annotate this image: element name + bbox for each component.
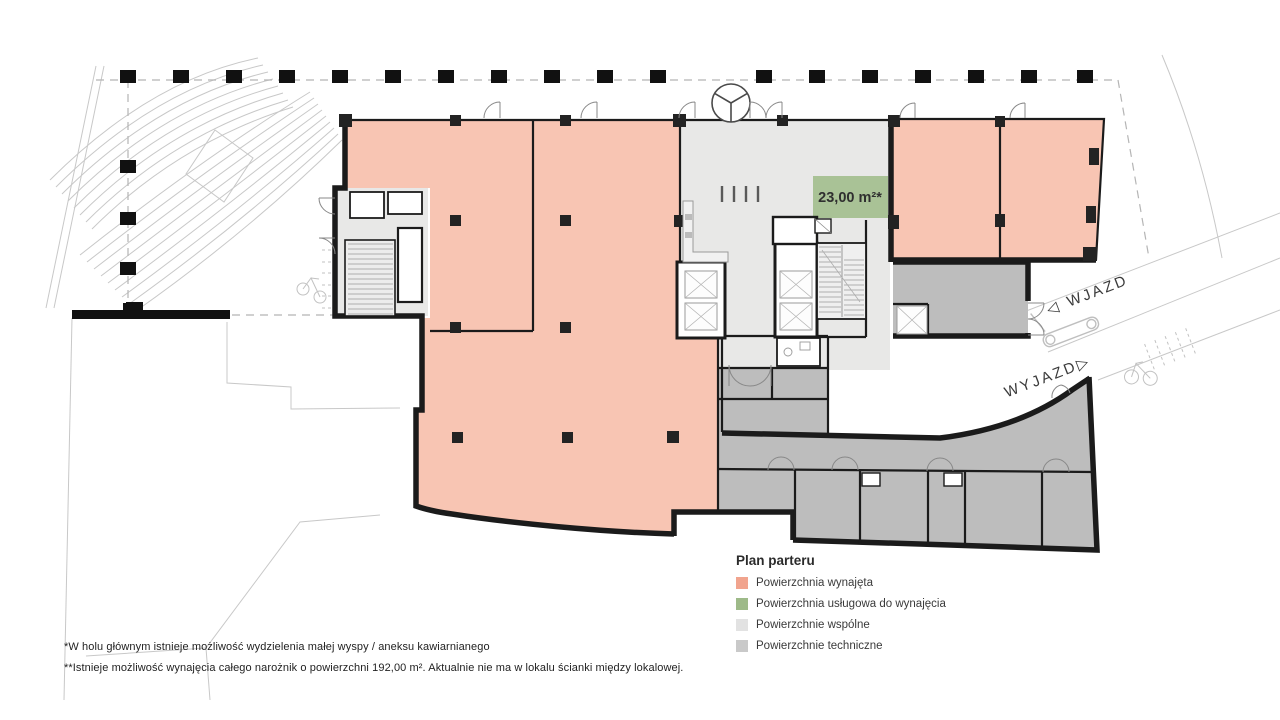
area-rented-main	[345, 120, 718, 534]
legend-item-label: Powierzchnia usługowa do wynajęcia	[756, 598, 946, 610]
main-stairs	[817, 243, 866, 319]
legend-item-common: Powierzchnie wspólne	[736, 619, 946, 631]
footnotes: *W holu głównym istnieje możliwość wydzi…	[64, 641, 683, 683]
entry-arrow-icon: ◁	[1044, 298, 1063, 319]
legend-item-label: Powierzchnia wynajęta	[756, 577, 873, 589]
area-rented-corner	[893, 120, 1104, 260]
entry-road-label: WJAZD	[1065, 272, 1131, 311]
service-area-label: 23,00 m²*	[818, 190, 882, 206]
toilet-rooms	[777, 338, 820, 366]
left-stair-block	[345, 192, 422, 316]
site-wall-fragment	[72, 310, 230, 319]
legend-title: Plan parteru	[736, 553, 946, 568]
storage-box	[944, 473, 962, 486]
footnote-2: **Istnieje możliwość wynajęcia całego na…	[64, 662, 683, 674]
bicycle-icon-left	[297, 278, 326, 303]
revolving-door-icon	[712, 84, 750, 122]
bike-parking-right	[1116, 328, 1201, 393]
legend-item-technical: Powierzchnie techniczne	[736, 640, 946, 652]
footnote-1: *W holu głównym istnieje możliwość wydzi…	[64, 641, 683, 653]
common-swatch	[736, 619, 748, 631]
legend-item-label: Powierzchnie wspólne	[756, 619, 870, 631]
rented-swatch	[736, 577, 748, 589]
technical-swatch	[736, 640, 748, 652]
legend-item-rented: Powierzchnia wynajęta	[736, 577, 946, 589]
legend-item-service: Powierzchnia usługowa do wynajęcia	[736, 598, 946, 610]
ramp-edge	[46, 66, 104, 308]
amphitheater-steps	[46, 58, 342, 311]
loading-notch	[676, 514, 791, 538]
legend-item-label: Powierzchnie techniczne	[756, 640, 883, 652]
legend: Plan parteru Powierzchnia wynajęta Powie…	[736, 553, 946, 652]
service-swatch	[736, 598, 748, 610]
floor-plan-drawing: ◁ WJAZD WYJAZD ▷ 23,00 m²*	[0, 0, 1280, 720]
storage-box	[862, 473, 880, 486]
floor-plan-page: ◁ WJAZD WYJAZD ▷ 23,00 m²* Plan parteru …	[0, 0, 1280, 720]
